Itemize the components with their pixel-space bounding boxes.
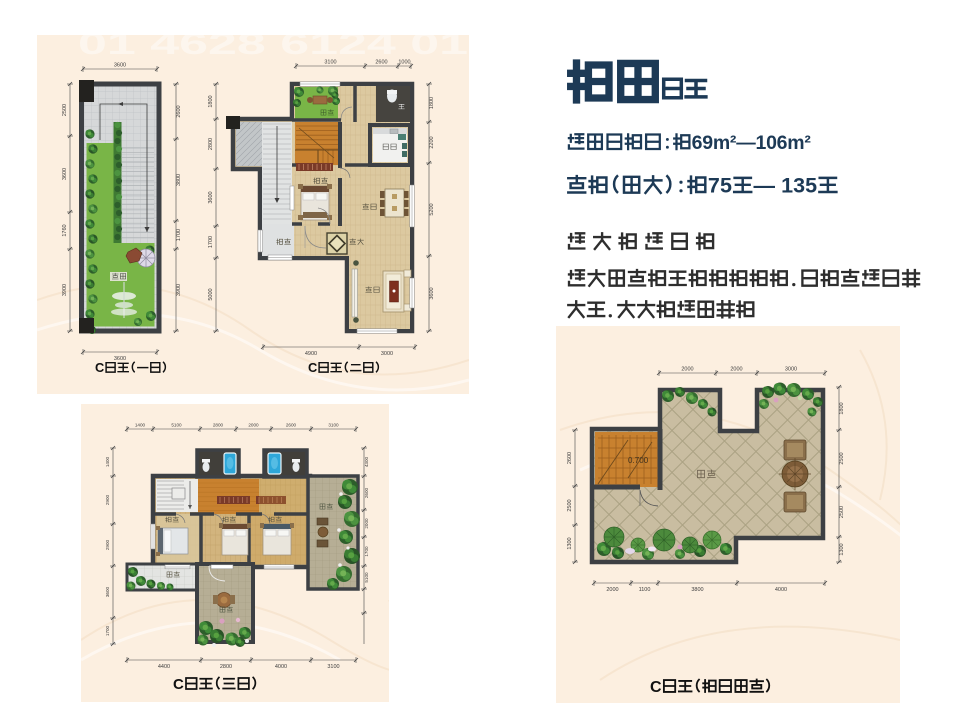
svg-text:C: C: [308, 360, 317, 375]
svg-text:3000: 3000: [381, 351, 393, 357]
svg-text:2900: 2900: [105, 539, 110, 550]
svg-text:2000: 2000: [248, 423, 259, 428]
svg-text:2500: 2500: [839, 452, 845, 464]
svg-text:2200: 2200: [429, 136, 435, 148]
svg-text:1400: 1400: [135, 423, 146, 428]
svg-text:C: C: [95, 360, 104, 375]
svg-text:1300: 1300: [567, 537, 573, 549]
svg-text:3800: 3800: [176, 174, 182, 186]
svg-text:2800: 2800: [220, 664, 232, 670]
svg-text:4000: 4000: [775, 587, 787, 593]
svg-text:— 135: — 135: [754, 174, 818, 198]
svg-text:3900: 3900: [176, 284, 182, 296]
svg-text:1700: 1700: [208, 236, 214, 248]
svg-text:1700: 1700: [364, 546, 369, 557]
svg-text:3600: 3600: [62, 168, 68, 180]
svg-text:5100: 5100: [171, 423, 182, 428]
svg-text:C: C: [173, 676, 184, 693]
svg-text:1700: 1700: [176, 229, 182, 241]
svg-text:3100: 3100: [327, 664, 339, 670]
svg-text:3100: 3100: [324, 60, 336, 66]
svg-text:4300: 4300: [364, 456, 369, 467]
svg-text:69m²—106m²: 69m²—106m²: [692, 132, 812, 154]
svg-text:1400: 1400: [105, 456, 110, 467]
svg-text:5100: 5100: [364, 572, 369, 583]
svg-text:3600: 3600: [208, 191, 214, 203]
svg-text:2500: 2500: [62, 104, 68, 116]
svg-text:1100: 1100: [639, 587, 651, 593]
svg-text:2800: 2800: [208, 138, 214, 150]
svg-text:C: C: [650, 679, 662, 696]
svg-text:2600: 2600: [176, 105, 182, 117]
svg-text:3100: 3100: [328, 423, 339, 428]
svg-text:1800: 1800: [839, 402, 845, 414]
svg-text:2000: 2000: [681, 367, 693, 373]
svg-text:1760: 1760: [62, 224, 68, 236]
svg-text:1800: 1800: [208, 95, 214, 107]
svg-text:2800: 2800: [213, 423, 224, 428]
svg-text:3600: 3600: [105, 586, 110, 597]
svg-text:3000: 3000: [785, 367, 797, 373]
svg-text:2600: 2600: [364, 487, 369, 498]
svg-text:2000: 2000: [730, 367, 742, 373]
svg-text:0.700: 0.700: [628, 456, 649, 465]
svg-text:5200: 5200: [429, 203, 435, 215]
svg-text:2900: 2900: [105, 494, 110, 505]
svg-text:3600: 3600: [114, 356, 126, 362]
svg-text:1300: 1300: [839, 543, 845, 555]
svg-text:01 4628 6124 01: 01 4628 6124 01: [78, 26, 468, 61]
svg-text:2600: 2600: [286, 423, 297, 428]
svg-text:2000: 2000: [364, 518, 369, 529]
svg-text:2600: 2600: [375, 60, 387, 66]
svg-text:2500: 2500: [839, 506, 845, 518]
svg-text:2000: 2000: [606, 587, 618, 593]
svg-text:4900: 4900: [305, 351, 317, 357]
svg-text:5000: 5000: [208, 288, 214, 300]
svg-text:1700: 1700: [105, 625, 110, 636]
svg-text:3600: 3600: [429, 287, 435, 299]
svg-text:1000: 1000: [398, 60, 410, 66]
svg-text:3800: 3800: [691, 587, 703, 593]
svg-text:3600: 3600: [114, 63, 126, 69]
svg-text:4000: 4000: [275, 664, 287, 670]
svg-text:1800: 1800: [429, 97, 435, 109]
svg-text:4400: 4400: [158, 664, 170, 670]
svg-text:3900: 3900: [62, 284, 68, 296]
svg-text:75: 75: [708, 174, 732, 198]
svg-text:2500: 2500: [567, 499, 573, 511]
svg-text:2600: 2600: [567, 452, 573, 464]
